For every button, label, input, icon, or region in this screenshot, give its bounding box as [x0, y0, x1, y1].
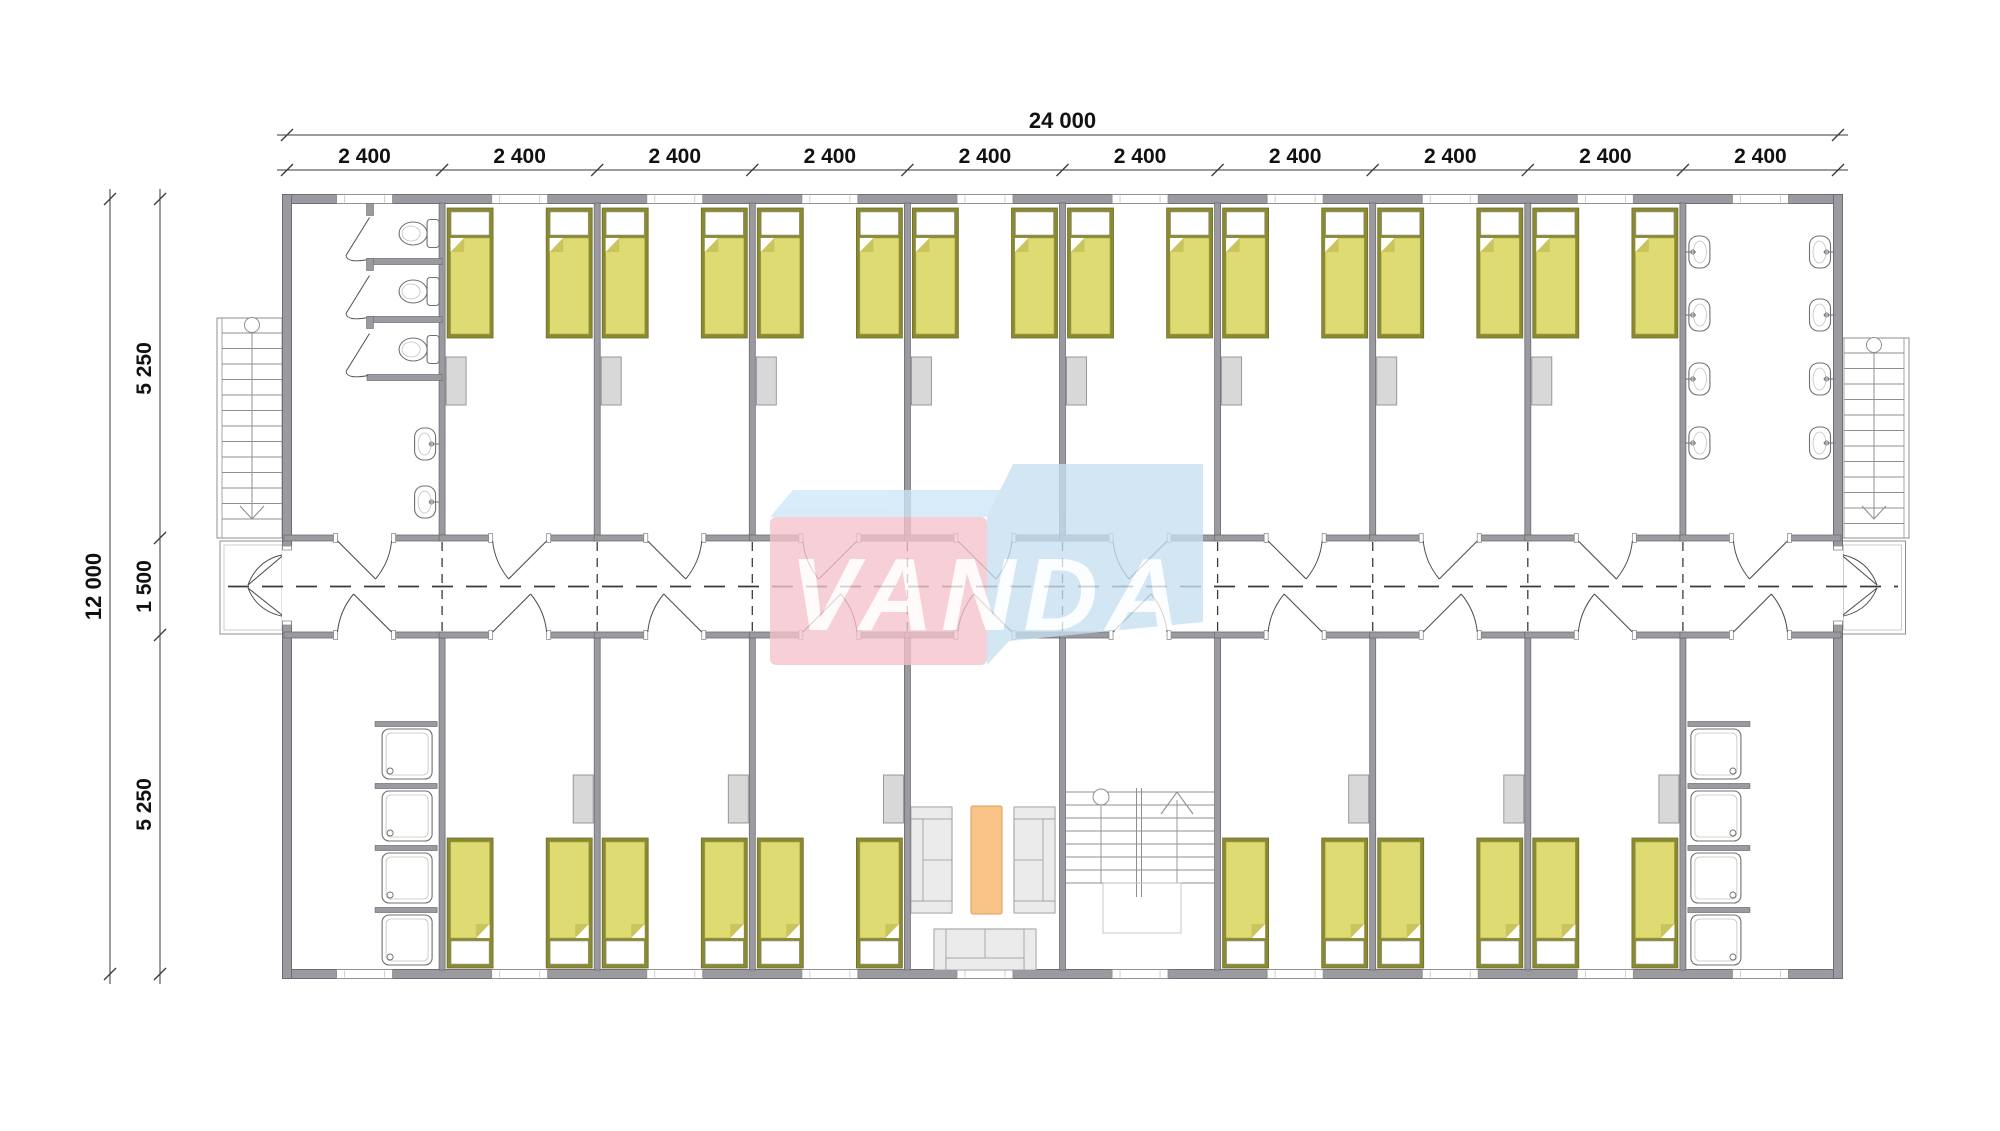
- module-1-front-room: [346, 204, 442, 519]
- module-9-front-room: [1532, 208, 1678, 405]
- bed: [1167, 208, 1213, 338]
- exterior-stairs-left-landing: [220, 541, 287, 634]
- module-7-front-room: [1222, 208, 1368, 405]
- watermark-text: VANDA: [790, 537, 1189, 652]
- dimension-label: 1 500: [133, 560, 156, 613]
- bed: [1632, 838, 1678, 968]
- washbasin: [1685, 363, 1710, 395]
- bed: [856, 838, 902, 968]
- exterior-stairs-right-landing: [1838, 541, 1906, 634]
- toilet: [399, 220, 439, 248]
- dim-overall-depth: 12 000: [81, 553, 106, 620]
- floorplan-drawing: 24 0002 4002 4002 4002 4002 4002 4002 40…: [0, 0, 2000, 1131]
- module-4-back-room: [757, 775, 903, 968]
- bed: [1533, 838, 1579, 968]
- bed: [1477, 838, 1523, 968]
- bed: [856, 208, 902, 338]
- module-10-back-room: [1688, 722, 1750, 966]
- module-2-back-room: [447, 775, 593, 968]
- bed: [447, 838, 493, 968]
- washbasin: [1810, 299, 1835, 331]
- module-3-front-room: [601, 208, 747, 405]
- bed: [1533, 208, 1579, 338]
- dimension-label: 2 400: [493, 145, 546, 168]
- bed: [546, 208, 592, 338]
- toilet: [399, 336, 439, 364]
- dimension-label: 2 400: [1269, 145, 1322, 168]
- washbasin: [1810, 363, 1835, 395]
- module-1-back-room: [375, 722, 437, 966]
- module-5-back-room: [911, 806, 1055, 970]
- washbasin: [415, 428, 440, 460]
- washbasin: [1810, 427, 1835, 459]
- bed: [757, 838, 803, 968]
- locker: [573, 775, 593, 823]
- toilet: [399, 278, 439, 306]
- module-6-back-room: [1066, 788, 1215, 933]
- dimension-label: 2 400: [1579, 145, 1632, 168]
- module-9-back-room: [1533, 775, 1679, 968]
- dimension-label: 2 400: [1114, 145, 1167, 168]
- bed: [701, 208, 747, 338]
- module-10-front-room: [1685, 236, 1835, 459]
- bed: [1378, 208, 1424, 338]
- bed: [602, 838, 648, 968]
- washbasin: [1810, 236, 1835, 268]
- bed: [1632, 208, 1678, 338]
- module-4-front-room: [756, 208, 902, 405]
- locker: [756, 357, 776, 405]
- dimension-label: 5 250: [133, 778, 156, 831]
- module-5-front-room: [911, 208, 1057, 405]
- dimension-label: 2 400: [804, 145, 857, 168]
- dimension-label: 2 400: [959, 145, 1012, 168]
- locker: [1377, 357, 1397, 405]
- washbasin: [1685, 236, 1710, 268]
- shower-column: [375, 722, 437, 966]
- bed: [1223, 208, 1269, 338]
- washbasin: [1685, 299, 1710, 331]
- dimension-label: 2 400: [1734, 145, 1787, 168]
- bed: [1477, 208, 1523, 338]
- dimension-label: 2 400: [1424, 145, 1477, 168]
- dimension-label: 5 250: [133, 342, 156, 395]
- toilet-stalls: [346, 204, 442, 381]
- module-8-back-room: [1378, 775, 1524, 968]
- locker: [1067, 357, 1087, 405]
- dimension-label: 2 400: [338, 145, 391, 168]
- bed: [1322, 838, 1368, 968]
- locker: [911, 357, 931, 405]
- washbasin: [1685, 427, 1710, 459]
- bed: [1378, 838, 1424, 968]
- locker: [1532, 357, 1552, 405]
- module-3-back-room: [602, 775, 748, 968]
- shower-column: [1688, 722, 1750, 966]
- locker: [1349, 775, 1369, 823]
- dimension-label: 2 400: [648, 145, 701, 168]
- bed: [1322, 208, 1368, 338]
- locker: [728, 775, 748, 823]
- watermark-top-face: [770, 490, 1010, 517]
- module-2-front-room: [446, 208, 592, 405]
- exterior-stairs-right: [1839, 338, 1909, 539]
- locker: [883, 775, 903, 823]
- bed: [757, 208, 803, 338]
- bed: [1068, 208, 1114, 338]
- locker: [446, 357, 466, 405]
- floorplan-canvas: 24 0002 4002 4002 4002 4002 4002 4002 40…: [0, 0, 2000, 1131]
- locker: [1659, 775, 1679, 823]
- module-6-front-room: [1067, 208, 1213, 405]
- bed: [1012, 208, 1058, 338]
- coffee-table: [971, 806, 1002, 914]
- module-7-back-room: [1223, 775, 1369, 968]
- dim-overall-width: 24 000: [1029, 108, 1096, 133]
- bed: [546, 838, 592, 968]
- locker: [601, 357, 621, 405]
- internal-staircase: [1066, 788, 1215, 933]
- bed: [912, 208, 958, 338]
- washbasin: [415, 486, 440, 518]
- bed: [1223, 838, 1269, 968]
- bed: [701, 838, 747, 968]
- locker: [1222, 357, 1242, 405]
- locker: [1504, 775, 1524, 823]
- exterior-stairs-left: [217, 318, 287, 539]
- module-8-front-room: [1377, 208, 1523, 405]
- bed: [447, 208, 493, 338]
- vanda-watermark: VANDA: [770, 464, 1203, 665]
- bed: [602, 208, 648, 338]
